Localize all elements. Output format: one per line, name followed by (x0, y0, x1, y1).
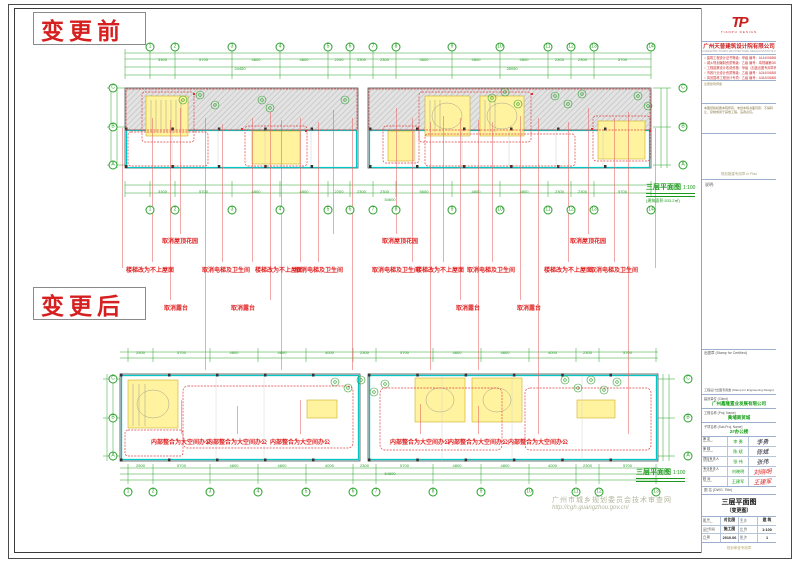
certificates-block: 建筑工程设计证书等级：甲级 编号：A144006888 城乡规划编制资质等级：乙… (702, 55, 776, 81)
meta-value: 建 筑 (758, 517, 776, 525)
grid-bubble: C (109, 375, 118, 384)
signer-name: 陈 斌 (728, 447, 749, 456)
grid-bubble: 1 (146, 206, 155, 215)
dimension-total: 54600 (384, 197, 395, 202)
project-value: 黄埔商贸城 (702, 415, 776, 421)
revision-note: 取消屋顶花园 (162, 236, 198, 245)
grid-bubble: 3 (228, 43, 237, 52)
dimension-label: 2200 (335, 57, 344, 62)
dimension-label: 2300 (578, 57, 587, 62)
grid-bubble: 7 (372, 488, 381, 497)
dimension-label: 5700 (623, 350, 632, 355)
subproject-value: 2#办公楼 (702, 429, 776, 435)
meta-label-en: DWG. No. (703, 522, 720, 524)
grid-bubble: 2 (171, 43, 180, 52)
watermark-url: http://cgh.guangzhou.gov.cn/ (552, 505, 672, 511)
signer-role-en: Examined (703, 451, 727, 454)
revision-note: 取消电梯及卫生间 (467, 265, 515, 274)
grid-bubble: A (109, 161, 118, 170)
grid-bubble: 8 (392, 206, 401, 215)
revision-note: 取消电梯及卫生间 (590, 265, 638, 274)
project-row: 工程名称 (Proj. Name) 黄埔商贸城 (702, 409, 776, 423)
drawing-title: 三层平面图 (722, 497, 757, 507)
grid-bubble: 10 (525, 488, 534, 497)
dimension-label: 4800 (230, 350, 239, 355)
revision-leader-line (430, 122, 431, 370)
dimension-label: 2300 (583, 350, 592, 355)
dimension-label: 5700 (177, 350, 186, 355)
dimension-label: 2300 (578, 189, 587, 194)
revision-note: 取消露台 (231, 303, 255, 312)
dimension-label: 4800 (472, 189, 481, 194)
dimension-label: 4800 (520, 57, 529, 62)
drawing-title-box: 三层平面图 （变更图） (702, 495, 776, 517)
revision-leader-line (281, 120, 282, 370)
plan-scale-after: 1:100 (673, 470, 686, 476)
grid-bubble: 13 (590, 43, 599, 52)
drawing-title-label-row: 图 名 (DWG. Title) (702, 487, 776, 495)
plan-area-note: (建筑面积:533.2㎡) (646, 198, 695, 204)
grid-bubble: 7 (369, 43, 378, 52)
revision-note: 内部整合为大空间办公 (207, 437, 267, 446)
signer-row: 审 定Approved 李 勇 李勇 (702, 437, 776, 447)
grid-bubble: 1 (124, 488, 133, 497)
company-name-en: GUANGZHOU TIANPU ARCHITECTURAL DESIGN IN… (702, 50, 776, 53)
plan-title-before: 三层平面图 1:100 (建筑面积:533.2㎡) (646, 182, 695, 204)
plan-submission-stamp-box: 规划报建专用章 In Plan (702, 134, 776, 180)
floor-plan-after (95, 342, 695, 517)
grid-bubble: 10 (496, 206, 505, 215)
drawing-title-label: 图 名 (DWG. Title) (704, 488, 732, 493)
dimension-label: 4800 (252, 57, 261, 62)
grid-bubble: 1 (146, 43, 155, 52)
title-underline (646, 193, 695, 197)
revision-leader-line (520, 116, 521, 300)
grid-bubble: 8 (429, 488, 438, 497)
revision-note: 楼梯改为不上屋面 (416, 265, 464, 274)
dimension-total: 28050 (506, 66, 517, 71)
grid-bubble: 12 (567, 43, 576, 52)
dimension-label: 4800 (501, 350, 510, 355)
signer-role-en: Proj. Archt. (703, 461, 727, 464)
dimension-label: 5700 (618, 189, 627, 194)
dimension-label: 4800 (472, 57, 481, 62)
grid-bubble: 2 (171, 206, 180, 215)
grid-bubble: 14 (647, 43, 656, 52)
revision-leader-line (333, 110, 334, 234)
dimension-label: 2300 (583, 463, 592, 468)
plan-stamp-label: 规划报建专用章 In Plan (721, 172, 757, 177)
grid-bubble: 11 (544, 206, 553, 215)
revision-note: 取消露台 (164, 303, 188, 312)
grid-bubble: 3 (206, 488, 215, 497)
revision-leader-line (396, 108, 397, 234)
dimension-label: 4000 (325, 463, 334, 468)
revision-note: 楼梯改为不上屋面 (126, 265, 174, 274)
meta-row: 设计阶段Stage 施工图 比 例Scale 1:100 (702, 526, 776, 535)
signer-name: 刘晓明 (728, 467, 749, 476)
signer-name: 张 伟 (728, 457, 749, 466)
revision-note: 取消露台 (456, 303, 480, 312)
meta-row: 图 号DWG. No. 对比图 专 业Spec. 建 筑 (702, 517, 776, 526)
grid-bubble: B (679, 123, 688, 132)
revision-leader-line (443, 116, 444, 262)
grid-bubble: 5 (324, 206, 333, 215)
revision-leader-line (237, 406, 238, 434)
notes-label: 说明: (705, 182, 714, 188)
plan-title-before-text: 三层平面图 (646, 184, 681, 191)
grid-bubble: 9 (448, 43, 457, 52)
dimension-label: 2300 (357, 189, 366, 194)
revision-leader-line (478, 120, 479, 370)
plan-title-after-text: 三层平面图 (636, 469, 671, 476)
dimension-label: 4800 (453, 463, 462, 468)
grid-bubble: 5 (302, 488, 311, 497)
dimension-label: 4000 (325, 350, 334, 355)
revision-leader-line (180, 108, 181, 234)
dimension-label: 4800 (230, 463, 239, 468)
dimension-label: 2300 (357, 57, 366, 62)
dimension-label: 4800 (453, 350, 462, 355)
dimension-label: 2300 (380, 189, 389, 194)
stamp-box-label: 注册建筑师章 (704, 82, 722, 86)
grid-bubble: C (679, 84, 688, 93)
grid-bubble: 4 (276, 43, 285, 52)
dimension-label: 2300 (555, 189, 564, 194)
meta-value: 1 (758, 534, 776, 542)
grid-bubble: A (684, 452, 693, 461)
revision-note: 取消屋顶花园 (382, 236, 418, 245)
grid-bubble: A (679, 161, 688, 170)
dimension-label: 4800 (252, 189, 261, 194)
dimension-label: 2200 (335, 189, 344, 194)
dimension-label: 2500 (136, 350, 145, 355)
revision-leader-line (318, 122, 319, 262)
meta-label-en: Date (703, 539, 720, 541)
grid-bubble: 13 (590, 206, 599, 215)
grid-bubble: 4 (254, 488, 263, 497)
logo-tp-mark: TP (731, 16, 746, 30)
dimension-label: 2300 (555, 57, 564, 62)
logo-subtext: TIANPU DESIGN (721, 30, 757, 34)
grid-bubble: 6 (346, 206, 355, 215)
grid-bubble: 12 (567, 206, 576, 215)
grid-bubble: 9 (448, 206, 457, 215)
drawing-sheet: 变更前 变更后 (0, 0, 800, 565)
dimension-label: 5700 (618, 57, 627, 62)
engineering-stamp-label: 工程设计出图专用章 (Stamp for Engineering Design) (702, 388, 776, 392)
grid-bubble: 9 (477, 488, 486, 497)
meta-value: 对比图 (721, 517, 739, 525)
footer-stamp-text: 规划审查专用章 (727, 546, 752, 551)
revision-leader-line (538, 118, 539, 434)
dimension-label: 4800 (278, 350, 287, 355)
meta-label-en: Issue (740, 539, 757, 541)
signer-row: 项目负责人Proj. Archt. 张 伟 张伟 (702, 457, 776, 467)
dimension-label: 5700 (177, 463, 186, 468)
grid-bubble: 10 (496, 43, 505, 52)
meta-value: 2010.06 (721, 534, 739, 542)
client-value: 广州鑫隆置业发展有限公司 (702, 401, 776, 407)
plan-title-after: 三层平面图 1:100 (636, 467, 685, 482)
company-logo: TP TIANPU DESIGN (702, 8, 776, 42)
titleblock-footer: 规划审查专用章 (702, 543, 776, 553)
grid-bubble: 7 (369, 206, 378, 215)
dimension-lines-top-after (120, 348, 658, 362)
grid-bubble: C (684, 375, 693, 384)
floor-plan-before (95, 38, 695, 233)
dimension-label: 2300 (380, 57, 389, 62)
revision-note: 楼梯改为不上屋面 (544, 265, 592, 274)
company-name: 广州天普建筑设计院有限公司 (702, 42, 776, 50)
revision-leader-line (122, 128, 123, 268)
dimension-label: 4800 (501, 463, 510, 468)
certified-stamp-label: 出图章 (Stamp for Certified) (704, 351, 747, 356)
meta-label-en: Scale (740, 531, 757, 533)
copyright-disclaimer: 本图纸版权属本院所有，未经本院书面同意，不得转让、复制或用于其他工程，违者必究。 (702, 104, 776, 134)
label-after-change: 变更后 (33, 287, 146, 320)
meta-label-en: Stage (703, 531, 720, 533)
revision-leader-line (181, 400, 182, 434)
signature-table: 审 定Approved 李 勇 李勇 审 核Examined 陈 斌 陈斌 项目… (702, 437, 776, 487)
dimension-total: 54600 (384, 471, 395, 476)
revision-note: 取消电梯及卫生间 (295, 265, 343, 274)
revision-leader-line (568, 122, 569, 262)
dimension-label: 3300 (158, 57, 167, 62)
label-after-text: 变更后 (41, 287, 125, 321)
revision-leader-line (588, 108, 589, 234)
signer-name: 李 勇 (728, 437, 749, 446)
grid-bubble: 5 (324, 43, 333, 52)
signer-row: 审 核Examined 陈 斌 陈斌 (702, 447, 776, 457)
certified-stamp-box: 出图章 (Stamp for Certified) 工程设计出图专用章 (Sta… (702, 350, 776, 395)
dimension-label: 5700 (400, 463, 409, 468)
dimension-label: 2300 (360, 350, 369, 355)
plan-scale-before: 1:100 (683, 185, 696, 191)
company-name-block: 广州天普建筑设计院有限公司 GUANGZHOU TIANPU ARCHITECT… (702, 42, 776, 55)
dimension-label: 2500 (136, 463, 145, 468)
grid-bubble: C (109, 84, 118, 93)
grid-bubble: B (684, 414, 693, 423)
signer-role-en: Approved (703, 441, 727, 444)
meta-label-en: Spec. (740, 522, 757, 524)
dimension-label: 5700 (199, 189, 208, 194)
review-watermark: 广州市城乡规划委员会技术审查网 http://cgh.guangzhou.gov… (552, 495, 672, 511)
dimension-label: 5700 (623, 463, 632, 468)
revision-note: 取消电梯及卫生间 (202, 265, 250, 274)
dimension-label: 5600 (420, 57, 429, 62)
grid-bubble: 4 (276, 206, 285, 215)
dimension-label: 4000 (548, 350, 557, 355)
revision-note: 内部整合为大空间办公 (508, 437, 568, 446)
revision-note: 取消露台 (517, 303, 541, 312)
grid-bubble: A (109, 452, 118, 461)
signer-role-en: Checked (703, 481, 727, 484)
dimension-label: 4800 (278, 463, 287, 468)
meta-value: 1:100 (758, 526, 776, 534)
revision-leader-line (420, 404, 421, 434)
dimension-label: 3300 (158, 189, 167, 194)
meta-value: 施工图 (721, 526, 739, 534)
title-underline (636, 478, 685, 482)
grid-bubble: 8 (392, 43, 401, 52)
revision-note: 内部整合为大空间办公 (151, 437, 211, 446)
revision-leader-line (478, 406, 479, 434)
dimension-label: 4000 (548, 463, 557, 468)
revision-leader-line (152, 118, 153, 262)
grid-bubble: 2 (149, 488, 158, 497)
revision-leader-line (205, 118, 206, 370)
signer-row: 校 对Checked 王建军 王建军 (702, 477, 776, 487)
revision-note: 内部整合为大空间办公 (270, 437, 330, 446)
dimension-label: 4800 (300, 57, 309, 62)
subproject-row: 子项名称 (Sub-Proj. Name) 2#办公楼 (702, 423, 776, 437)
revision-note: 取消电梯及卫生间 (372, 265, 420, 274)
watermark-line1: 广州市城乡规划委员会技术审查网 (552, 495, 672, 505)
drawing-title-sub: （变更图） (726, 507, 751, 514)
dimension-label: 5600 (420, 189, 429, 194)
revision-leader-line (300, 400, 301, 434)
dimension-label: 5700 (400, 350, 409, 355)
dimension-label: 2300 (360, 463, 369, 468)
revision-leader-line (492, 122, 493, 262)
signer-role-en: Disc. Chief (703, 471, 727, 474)
notes-box: 说明: (702, 180, 776, 350)
revision-leader-line (352, 118, 353, 370)
dimension-label: 4800 (300, 189, 309, 194)
revision-leader-line (614, 118, 615, 262)
dimension-label: 4800 (520, 189, 529, 194)
grid-bubble: 14 (647, 206, 656, 215)
revision-note: 内部整合为大空间办公 (390, 437, 450, 446)
revision-note: 内部整合为大空间办公 (448, 437, 508, 446)
grid-bubble: B (109, 123, 118, 132)
grid-bubble: 11 (544, 43, 553, 52)
signer-row: 专业负责人Disc. Chief 刘晓明 刘晓明 (702, 467, 776, 477)
dimension-lines-top (125, 49, 651, 79)
dimension-total: 24450 (234, 66, 245, 71)
revision-leader-line (222, 124, 223, 262)
revision-note: 取消屋顶花园 (570, 236, 606, 245)
grid-bubble: B (109, 414, 118, 423)
dimension-label: 5700 (199, 57, 208, 62)
signer-name: 王建军 (728, 477, 749, 486)
grid-bubble: 3 (228, 206, 237, 215)
client-row: 建设单位 (Client) 广州鑫隆置业发展有限公司 (702, 395, 776, 409)
grid-bubble: 6 (349, 488, 358, 497)
registered-architect-stamp-box: 注册建筑师章 (702, 81, 776, 104)
title-block: TP TIANPU DESIGN 广州天普建筑设计院有限公司 GUANGZHOU… (701, 8, 776, 553)
meta-row: 日 期Date 2010.06 版 次Issue 1 (702, 534, 776, 542)
grid-bubble: 6 (346, 43, 355, 52)
drawing-meta-table: 图 号DWG. No. 对比图 专 业Spec. 建 筑 设计阶段Stage 施… (702, 517, 776, 543)
